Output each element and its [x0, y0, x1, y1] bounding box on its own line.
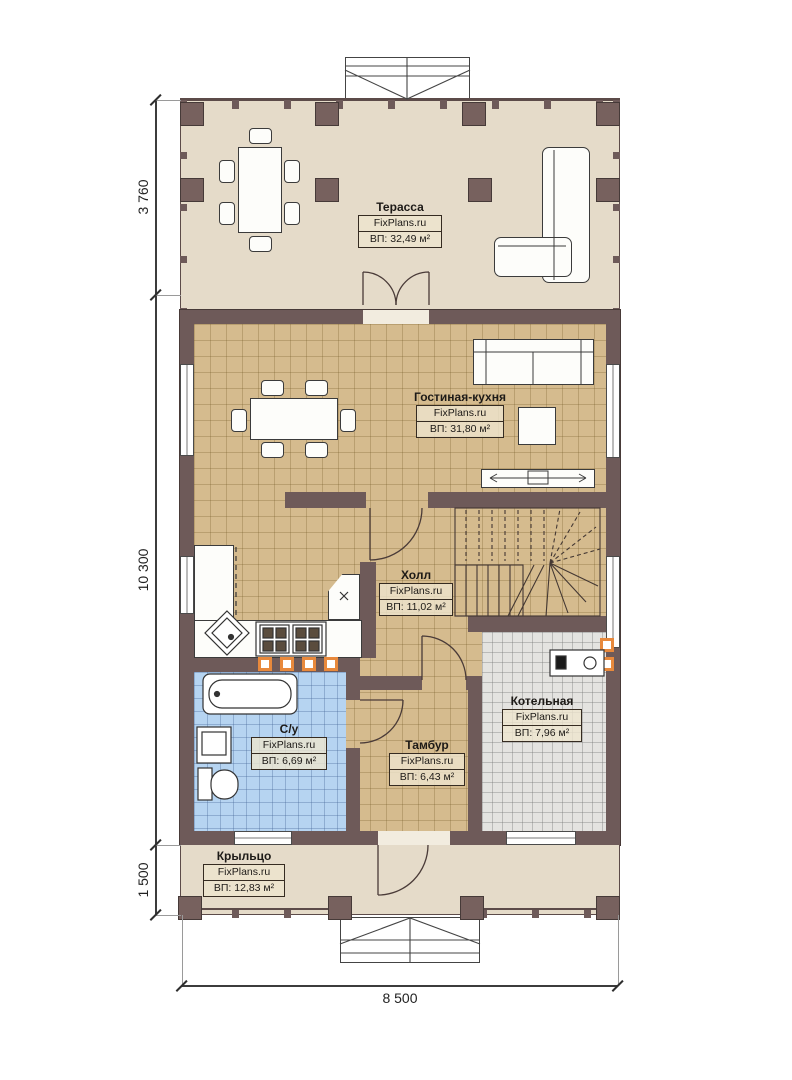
room-name: С/у [249, 722, 329, 736]
chair [219, 202, 235, 225]
dimension-label-porch-depth: 1 500 [135, 848, 151, 912]
room-name: Крыльцо [202, 849, 286, 863]
extension-line [155, 915, 181, 916]
dimension-label-terrace-depth: 3 760 [135, 165, 151, 229]
interior-wall [468, 616, 482, 632]
interior-wall [468, 688, 482, 831]
kitchen-counter [194, 545, 234, 623]
interior-wall [428, 492, 606, 508]
room-name: Терасса [355, 200, 445, 214]
brand-text: FixPlans.ru [503, 710, 581, 725]
area-text: ВП: 11,02 м² [380, 599, 452, 615]
room-name: Холл [378, 568, 454, 582]
extension-line [618, 915, 619, 985]
terrace-dining-table [238, 147, 282, 233]
chair [305, 380, 328, 396]
extension-line [182, 915, 183, 985]
column [462, 102, 486, 126]
column [460, 896, 484, 920]
dimension-label-width: 8 500 [368, 990, 432, 1006]
window [506, 831, 576, 845]
vent-marker [324, 657, 338, 671]
room-name: Гостиная-кухня [408, 390, 512, 404]
room-label-living: Гостиная-кухня FixPlans.ru ВП: 31,80 м² [408, 390, 512, 438]
dining-table [250, 398, 338, 440]
area-text: ВП: 12,83 м² [204, 880, 284, 896]
dimension-label-house-depth: 10 300 [135, 538, 151, 602]
brand-text: FixPlans.ru [390, 754, 464, 769]
window [180, 556, 194, 614]
room-name: Тамбур [387, 738, 467, 752]
room-info-box: FixPlans.ru ВП: 31,80 м² [416, 405, 504, 438]
vent-marker [280, 657, 294, 671]
tv-stand [481, 469, 595, 488]
interior-wall [346, 676, 422, 690]
floor-plan: Терасса FixPlans.ru ВП: 32,49 м² [0, 0, 792, 1080]
interior-wall [346, 748, 360, 831]
column [328, 896, 352, 920]
chair [284, 202, 300, 225]
window [606, 364, 620, 458]
column [315, 178, 339, 202]
vent-marker [258, 657, 272, 671]
entry-door-opening [378, 831, 450, 845]
column [468, 178, 492, 202]
chair [305, 442, 328, 458]
area-text: ВП: 7,96 м² [503, 725, 581, 741]
room-info-box: FixPlans.ru ВП: 32,49 м² [358, 215, 442, 248]
coffee-table [518, 407, 556, 445]
vent-marker [302, 657, 316, 671]
kitchen-counter [194, 620, 362, 658]
area-text: ВП: 32,49 м² [359, 231, 441, 247]
chair [340, 409, 356, 432]
window [606, 556, 620, 648]
room-info-box: FixPlans.ru ВП: 6,69 м² [251, 737, 327, 770]
brand-text: FixPlans.ru [204, 865, 284, 880]
extension-line [155, 295, 181, 296]
porch-railing [180, 908, 330, 918]
terrace-door-opening [363, 310, 429, 324]
area-text: ВП: 6,69 м² [252, 753, 326, 769]
room-info-box: FixPlans.ru ВП: 11,02 м² [379, 583, 453, 616]
brand-text: FixPlans.ru [252, 738, 326, 753]
corner-sofa [494, 237, 572, 277]
terrace-railing-top [180, 98, 620, 109]
column [315, 102, 339, 126]
room-info-box: FixPlans.ru ВП: 6,43 м² [389, 753, 465, 786]
interior-wall [360, 562, 376, 658]
chair [261, 442, 284, 458]
chair [284, 160, 300, 183]
area-text: ВП: 31,80 м² [417, 421, 503, 437]
column [180, 102, 204, 126]
chair [249, 128, 272, 144]
room-info-box: FixPlans.ru ВП: 12,83 м² [203, 864, 285, 897]
column [596, 896, 620, 920]
extension-line [155, 100, 181, 101]
vent-marker [600, 638, 614, 652]
dimension-line-bottom [182, 985, 618, 987]
room-info-box: FixPlans.ru ВП: 7,96 м² [502, 709, 582, 742]
area-text: ВП: 6,43 м² [390, 769, 464, 785]
column [596, 102, 620, 126]
terrace-steps [345, 57, 470, 101]
chair [261, 380, 284, 396]
column [180, 178, 204, 202]
chair [249, 236, 272, 252]
brand-text: FixPlans.ru [417, 406, 503, 421]
extension-line [155, 845, 181, 846]
terrace-railing-right [613, 100, 620, 310]
brand-text: FixPlans.ru [380, 584, 452, 599]
room-label-hall: Холл FixPlans.ru ВП: 11,02 м² [378, 568, 454, 616]
window [234, 831, 292, 845]
room-label-porch: Крыльцо FixPlans.ru ВП: 12,83 м² [202, 849, 286, 897]
chair [231, 409, 247, 432]
room-label-bathroom: С/у FixPlans.ru ВП: 6,69 м² [249, 722, 329, 770]
window [180, 364, 194, 456]
terrace-railing-left [180, 100, 187, 310]
chair [219, 160, 235, 183]
brand-text: FixPlans.ru [359, 216, 441, 231]
entry-steps [340, 917, 480, 963]
room-label-vestibule: Тамбур FixPlans.ru ВП: 6,43 м² [387, 738, 467, 786]
sofa [473, 339, 594, 385]
room-label-boiler: Котельная FixPlans.ru ВП: 7,96 м² [498, 694, 586, 742]
vent-marker [600, 657, 614, 671]
interior-wall [468, 616, 606, 632]
room-name: Котельная [498, 694, 586, 708]
room-label-terrace: Терасса FixPlans.ru ВП: 32,49 м² [355, 200, 445, 248]
column [596, 178, 620, 202]
interior-wall [285, 492, 366, 508]
dimension-line-left [155, 100, 157, 915]
